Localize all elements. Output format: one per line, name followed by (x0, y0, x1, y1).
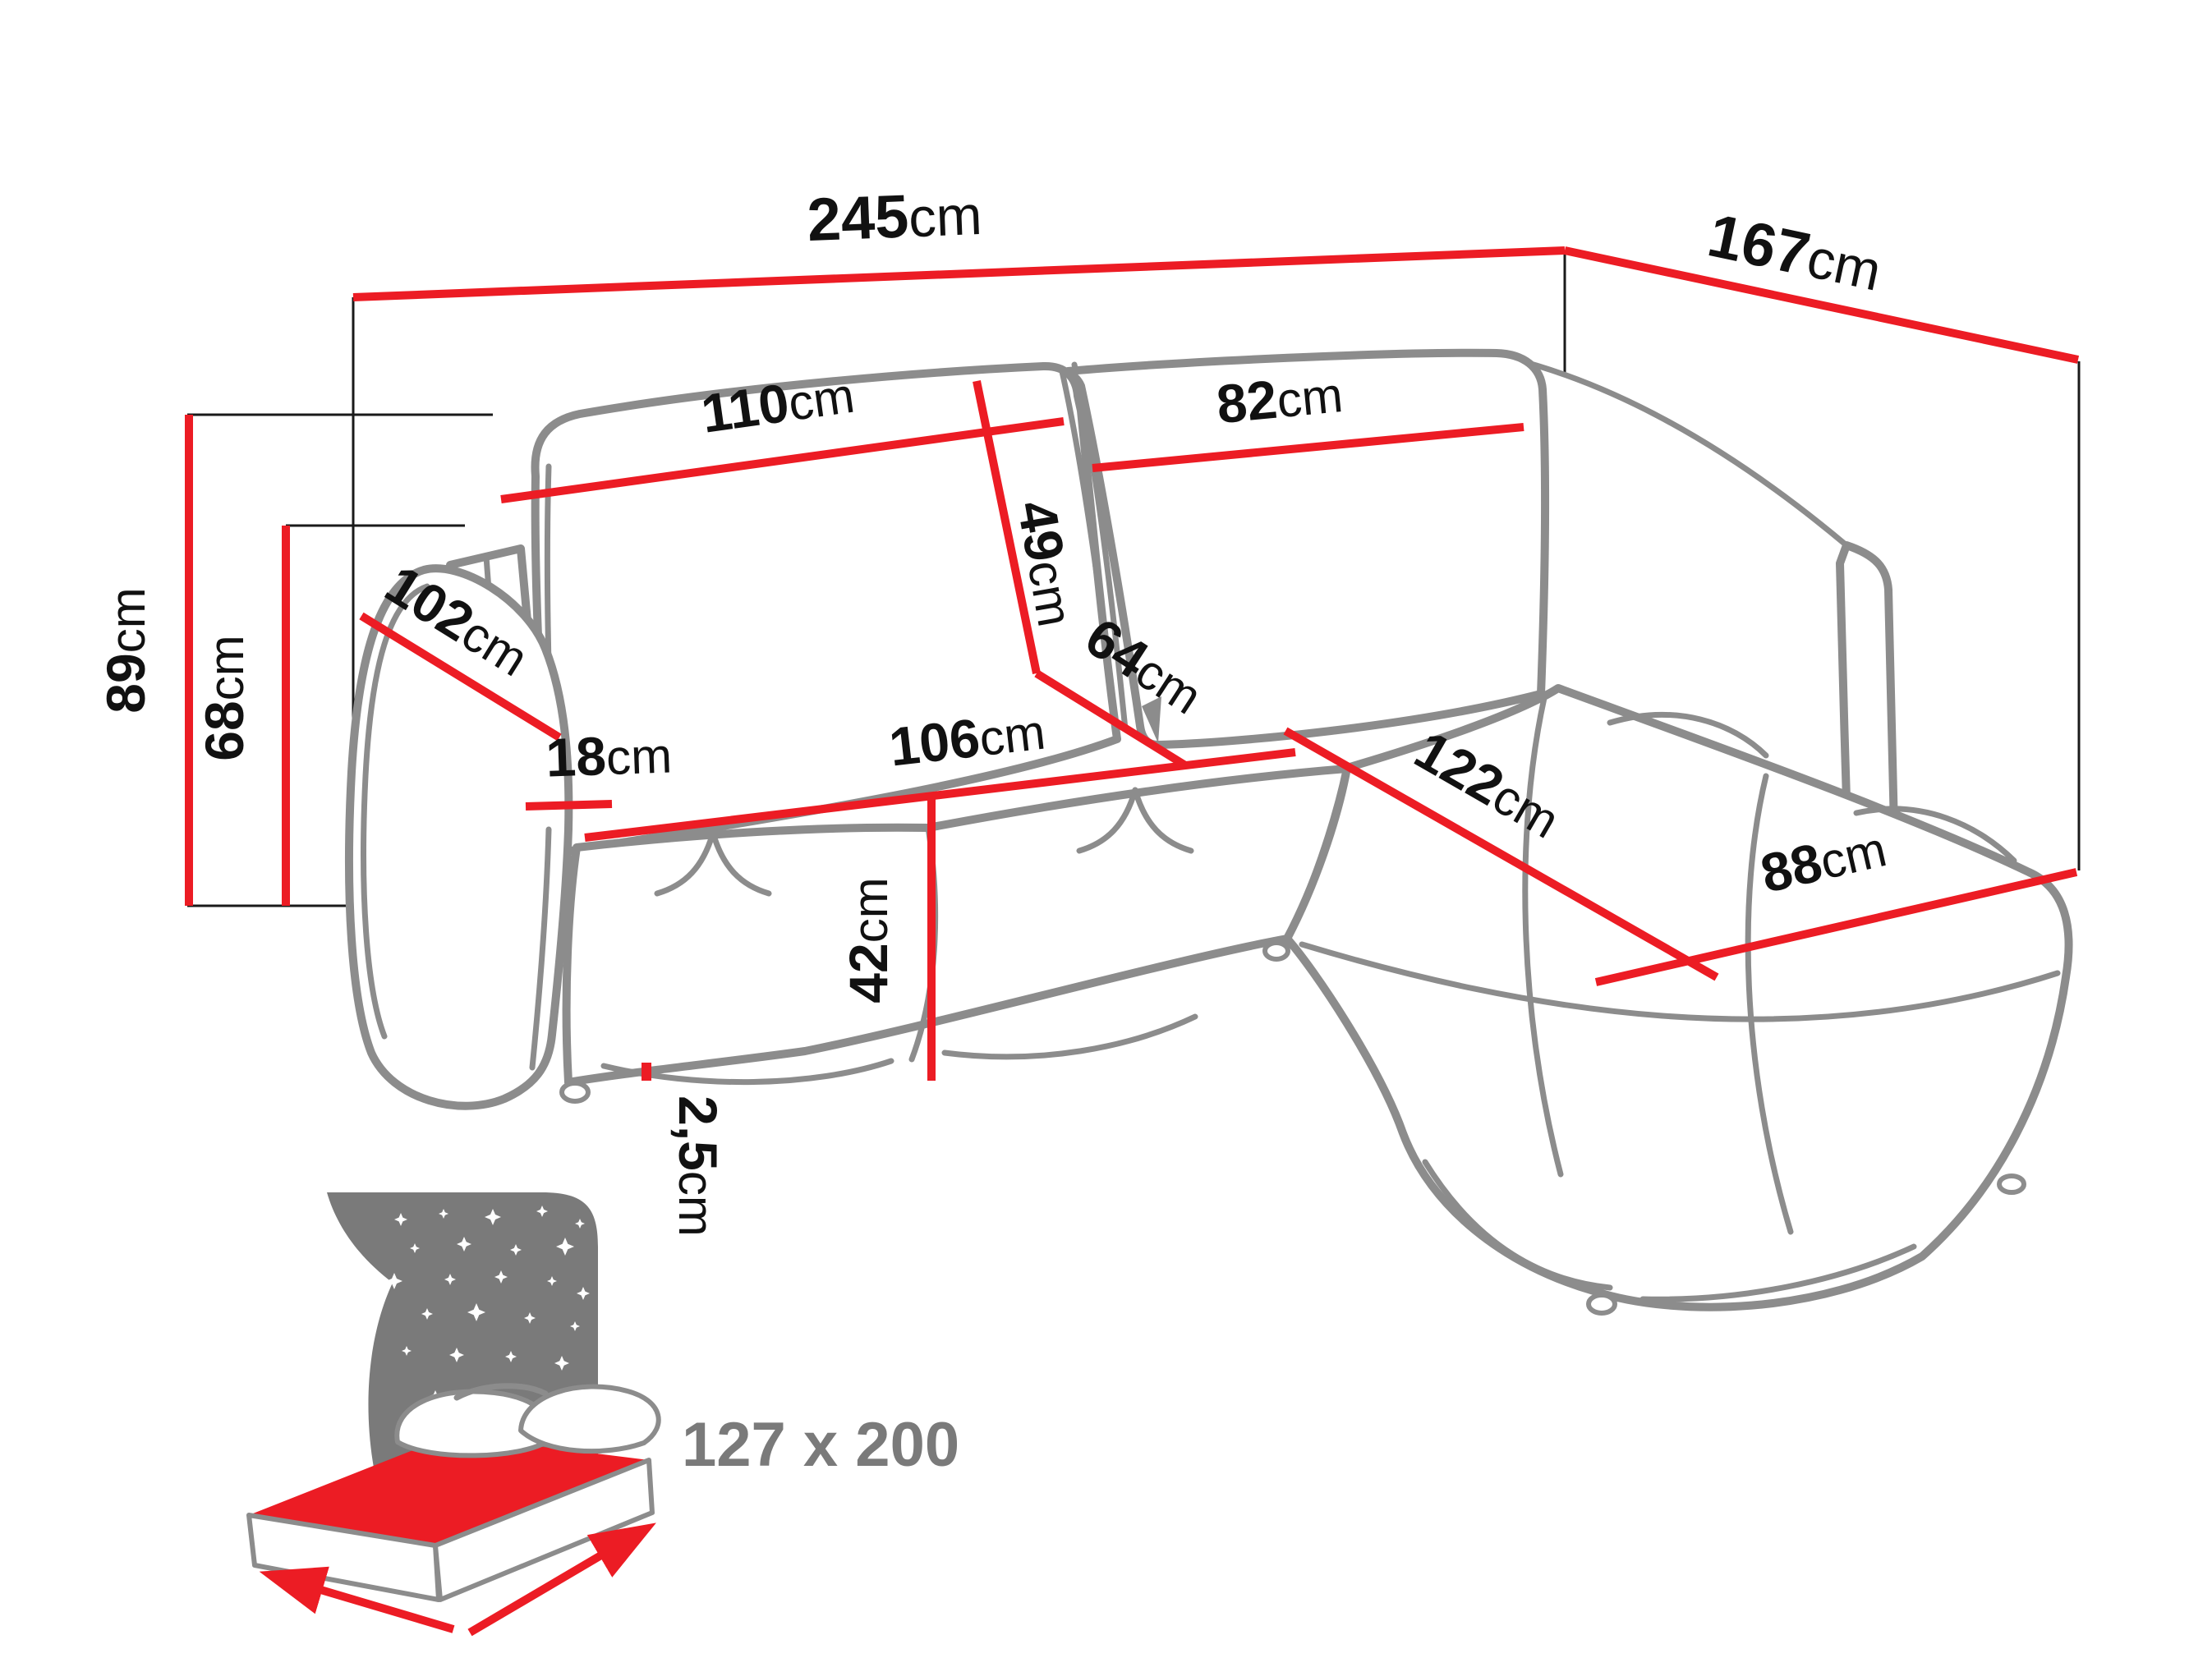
sofa-foot-2 (1265, 943, 1288, 959)
label-armrest-width: 18cm (545, 723, 673, 788)
label-armrest-height: 68cm (194, 635, 255, 760)
label-overall-width: 245cm (806, 179, 983, 254)
label-sleeping-area: 127 x 200 (682, 1410, 959, 1480)
diagram-canvas: 245cm 167cm 110cm 82cm 49cm 102cm 89cm 6… (0, 0, 2212, 1658)
label-ground-clearance: 2,5cm (668, 1095, 729, 1237)
sofa-back-top-edge (1510, 358, 1846, 545)
sofa-bed-sleeping-function-icon (249, 1192, 659, 1633)
sofa-foot-1 (562, 1083, 588, 1101)
seat-front-bump-2 (945, 1017, 1195, 1057)
label-seat-height: 42cm (838, 877, 899, 1003)
dimension-line-armrest-width (526, 804, 612, 806)
label-overall-height: 89cm (95, 587, 156, 713)
sofa-dimension-diagram: 245cm 167cm 110cm 82cm 49cm 102cm 89cm 6… (0, 0, 2212, 1658)
sofa-foot-4 (1999, 1176, 2024, 1192)
dimension-line-overall-width (353, 250, 1565, 297)
sofa-foot-3 (1589, 1295, 1615, 1313)
